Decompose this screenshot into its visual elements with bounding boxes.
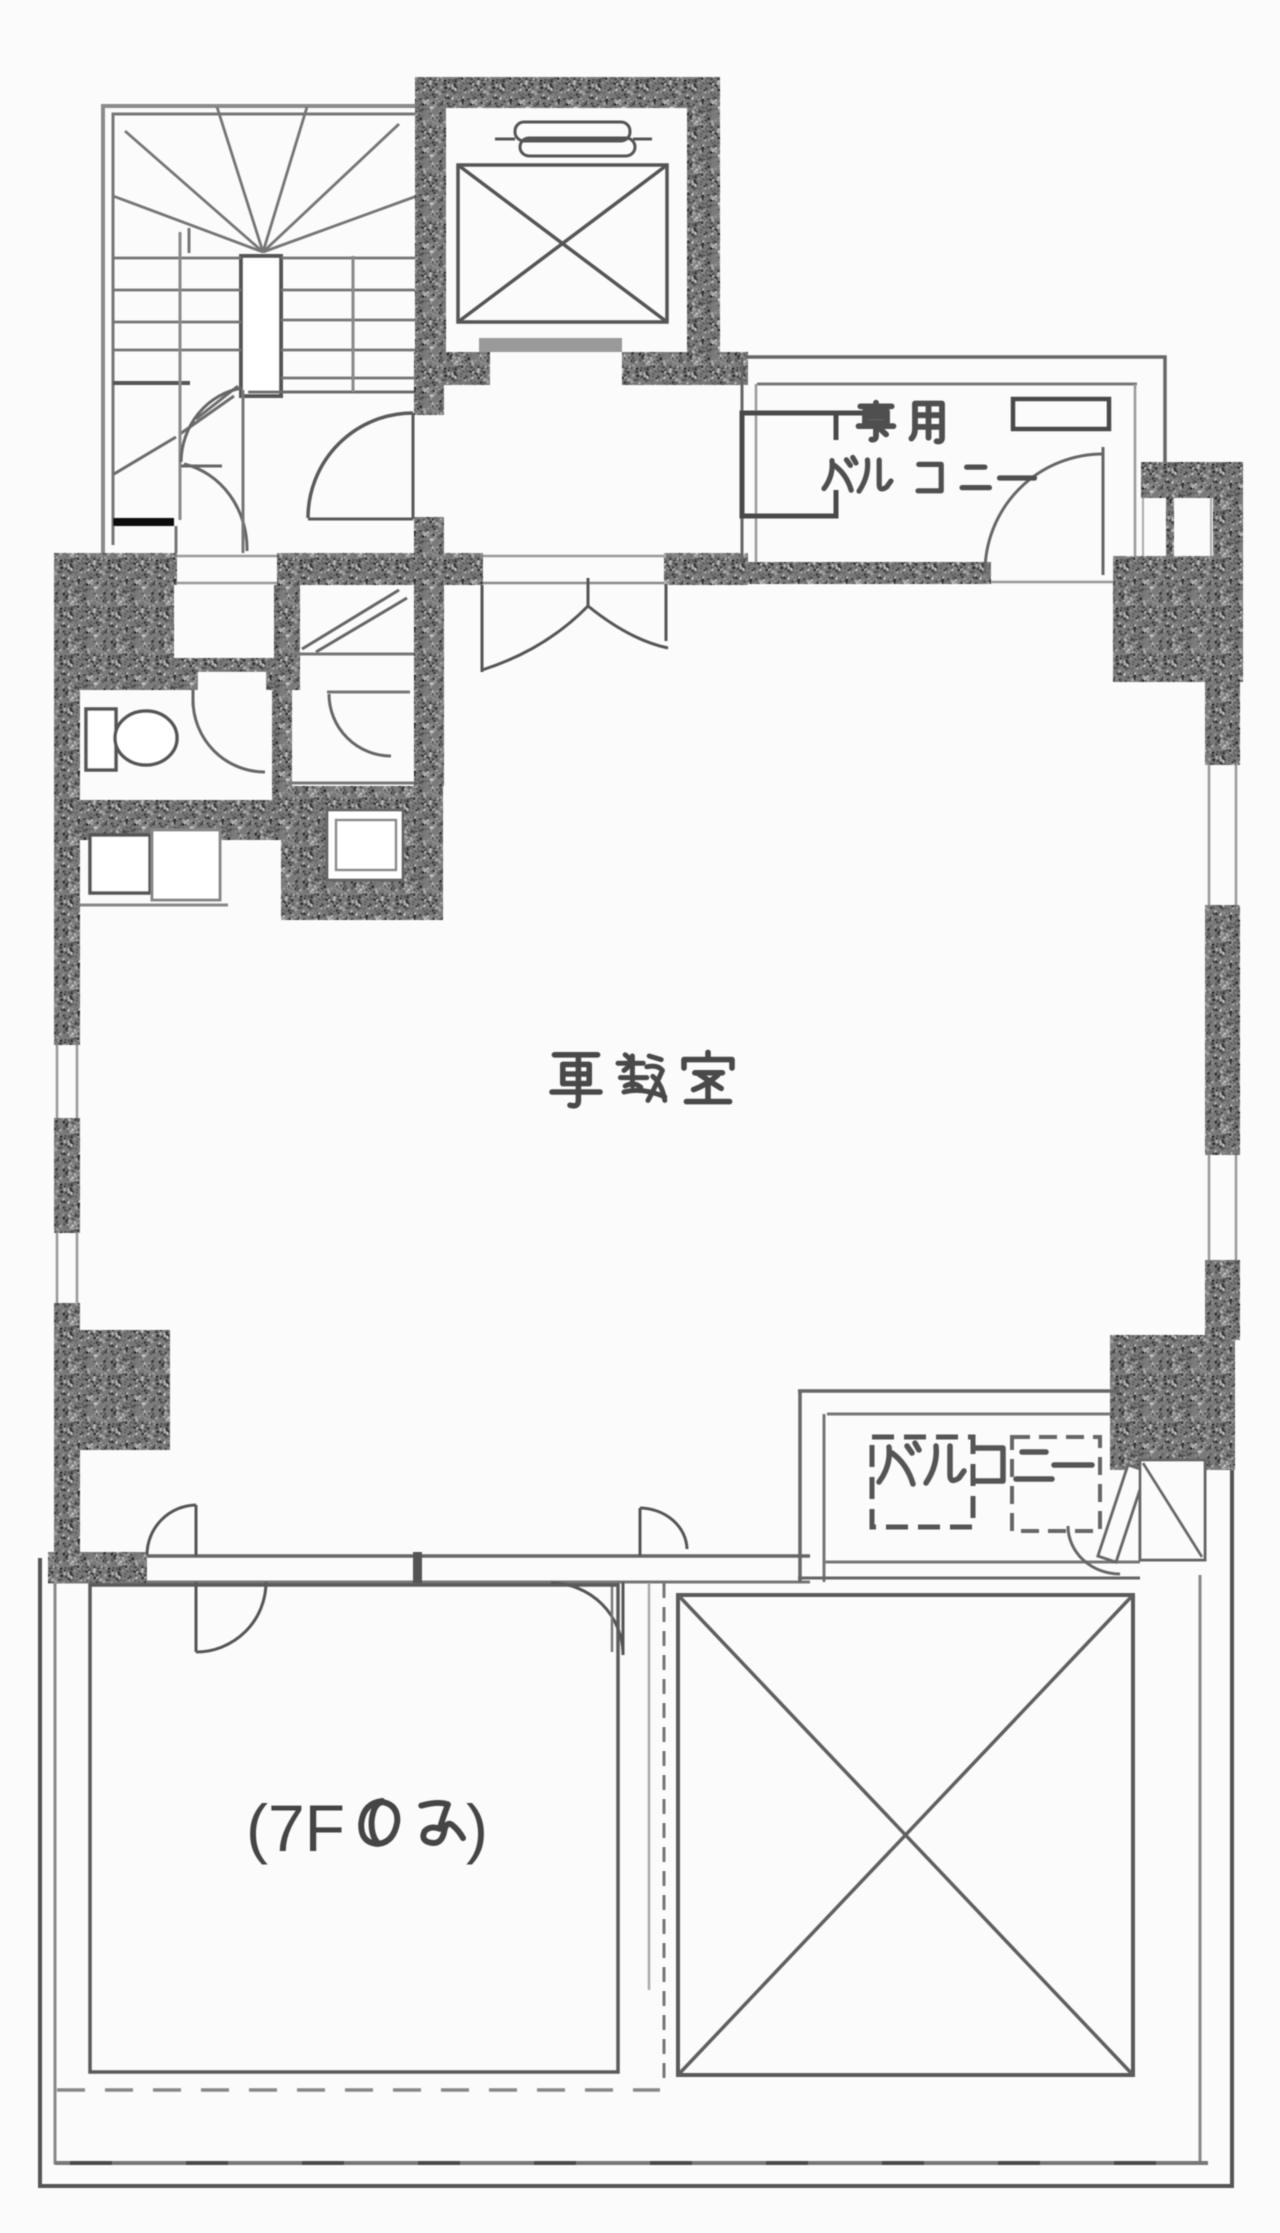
svg-text:): ) [466,1791,488,1865]
svg-text:(7F: (7F [246,1791,345,1865]
